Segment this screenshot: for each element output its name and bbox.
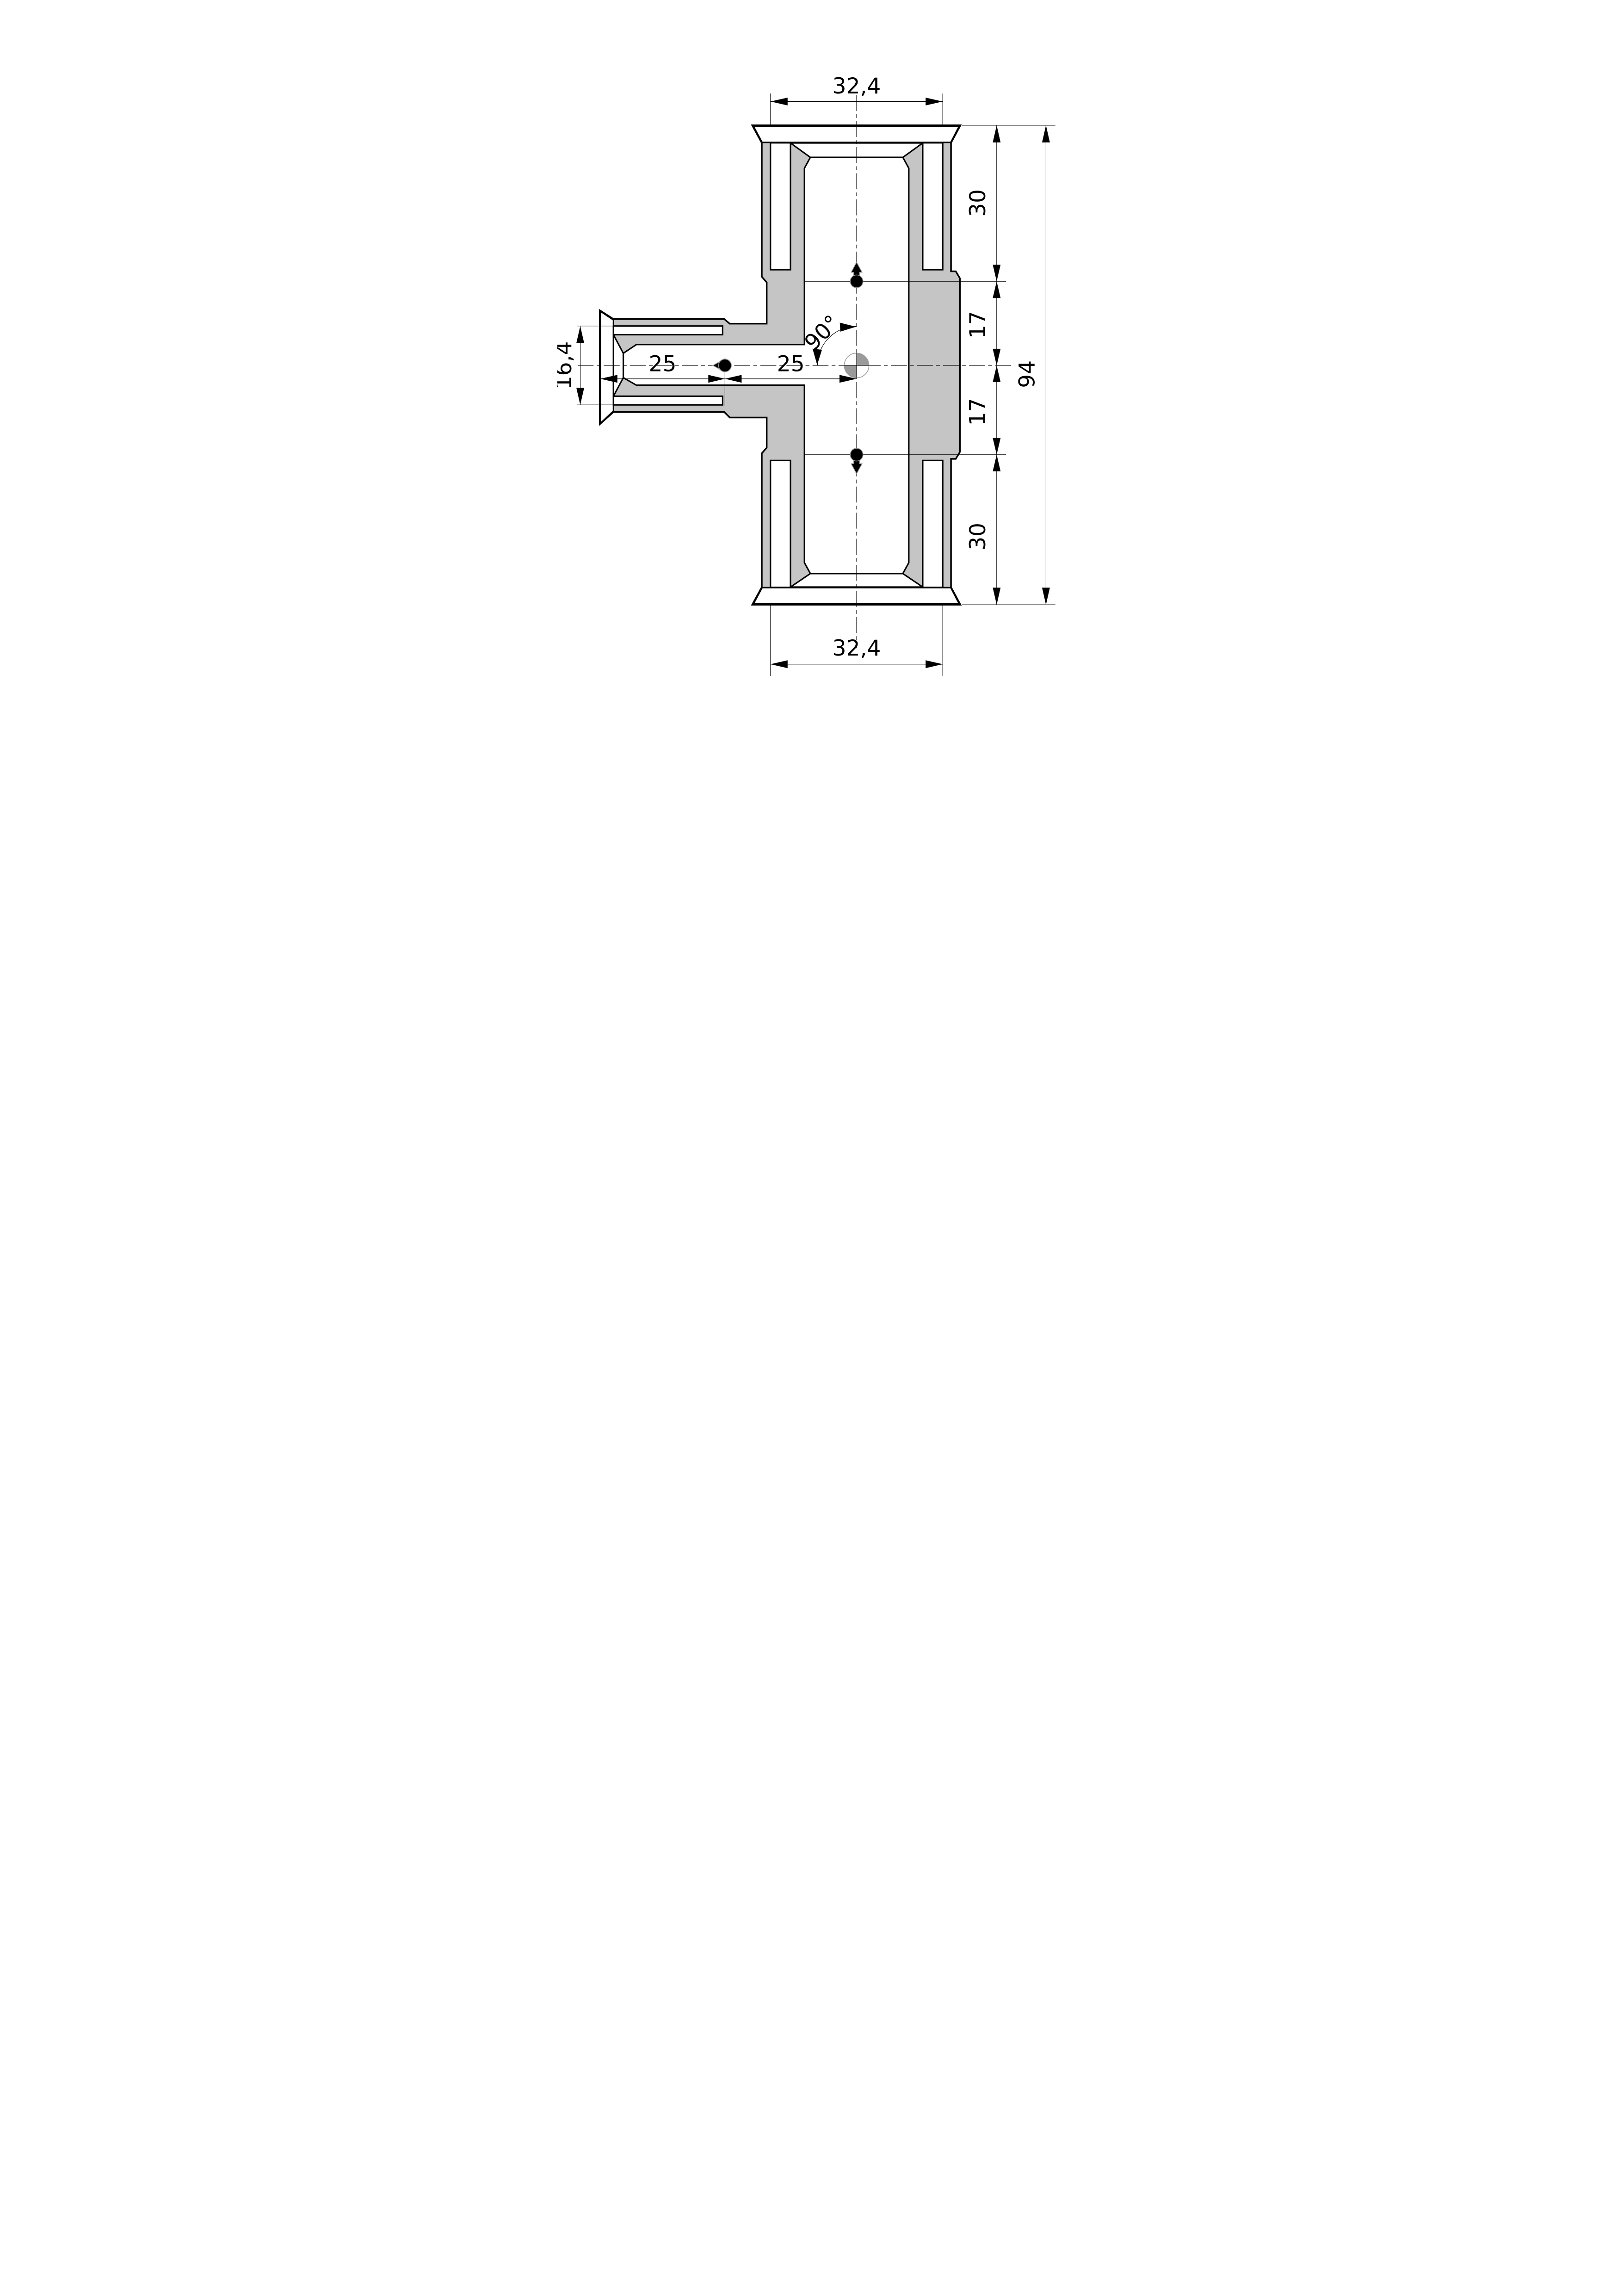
arrowhead-left [770,660,787,668]
dim-label-depth-left: 25 [648,352,676,377]
bowtie-mid-a [993,349,1000,365]
bowtie-mid-b [993,365,1000,382]
dim-right-chain: 30 17 17 30 [965,125,1000,605]
dim-label-seg-30-bottom: 30 [965,523,990,551]
dim-label-top-width: 32,4 [832,74,881,99]
dim-label-bottom-width: 32,4 [832,636,881,661]
dim-overall-height: 94 [1014,125,1050,605]
bottom-port-entry [753,588,959,604]
arrowhead-right [926,660,943,668]
dim-label-seg-17-lower: 17 [965,398,990,426]
bottom-port-socket-left [770,460,790,587]
top-port-socket-right [922,143,942,270]
dim-label-depth-right: 25 [777,352,804,377]
dim-bottom-width: 32,4 [770,636,942,668]
dim-label-overall-height: 94 [1014,360,1040,388]
arrowhead-down [1042,588,1049,605]
bowtie-lower-b [993,455,1000,471]
bowtie-upper-a [993,265,1000,281]
bottom-port-socket-right [922,460,942,587]
left-port-socket-upper [613,326,722,335]
arrowhead-left [770,98,787,105]
bowtie-lower-a [993,438,1000,455]
dim-label-seg-30-top: 30 [965,189,990,217]
arrowhead-down [993,588,1000,605]
dim-branch-bore: 16,4 [557,326,584,405]
left-port-entry [600,311,613,423]
left-port-socket-lower [613,396,722,405]
dim-label-seg-17-upper: 17 [965,311,990,339]
drawing-page: 32,4 32,4 30 17 17 30 94 16,4 [557,0,1066,720]
technical-drawing-canvas: 32,4 32,4 30 17 17 30 94 16,4 [557,0,1066,720]
bowtie-upper-b [993,281,1000,298]
arrowhead-up [576,326,584,343]
arrowhead-right [926,98,943,105]
dim-label-branch-bore: 16,4 [557,341,577,390]
arrowhead-up [1042,125,1049,142]
centroid-icon [844,353,869,378]
arrowhead-up [993,125,1000,142]
top-port-entry [753,126,959,142]
arrowhead-down [576,388,584,405]
top-port-socket-left [770,143,790,270]
